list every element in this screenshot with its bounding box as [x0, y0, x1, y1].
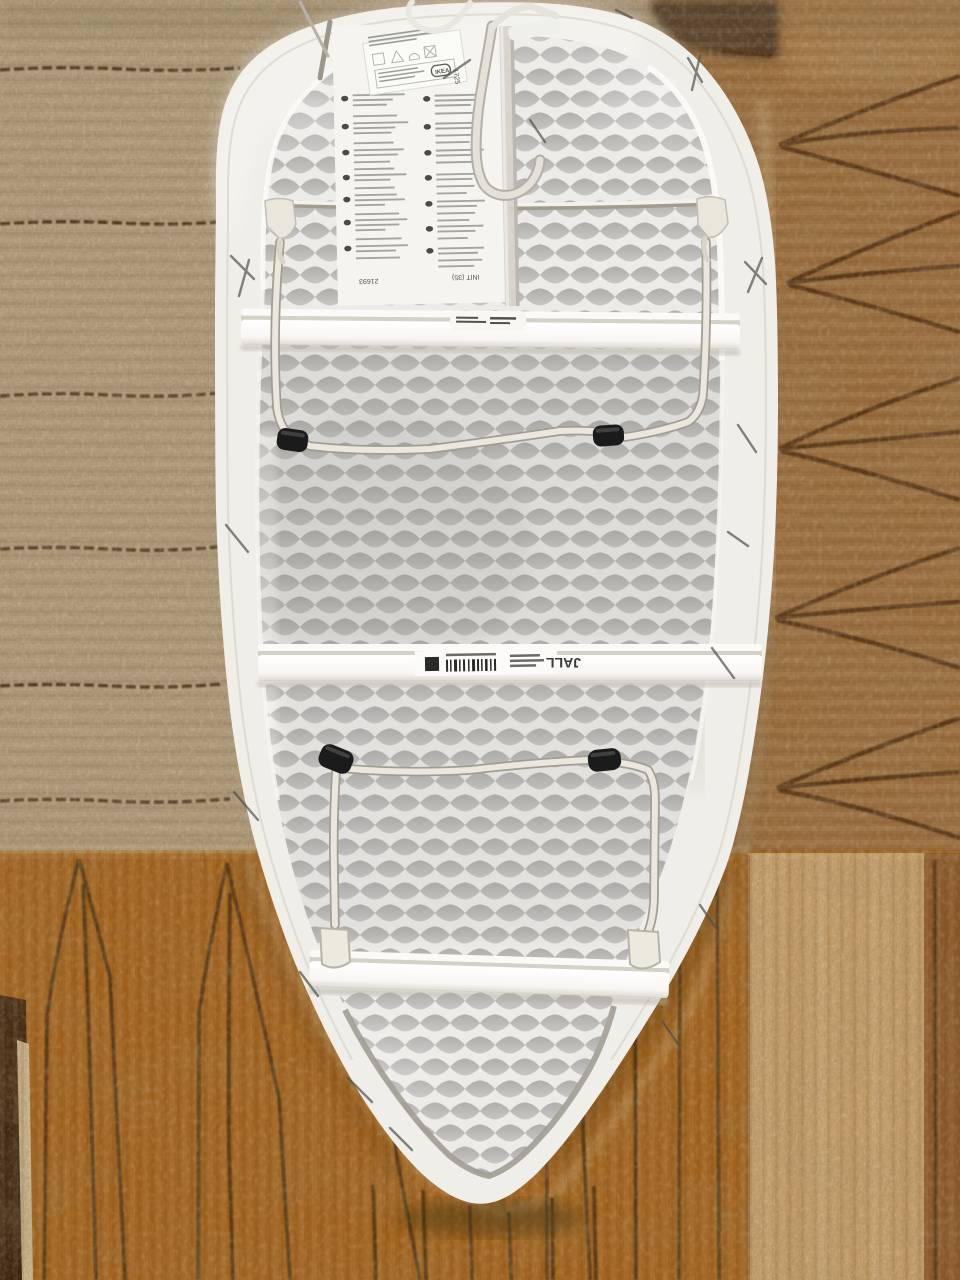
svg-text:INIT (35): INIT (35): [452, 273, 480, 281]
svg-text:JALL: JALL: [546, 655, 581, 671]
svg-text:21693: 21693: [359, 277, 379, 284]
